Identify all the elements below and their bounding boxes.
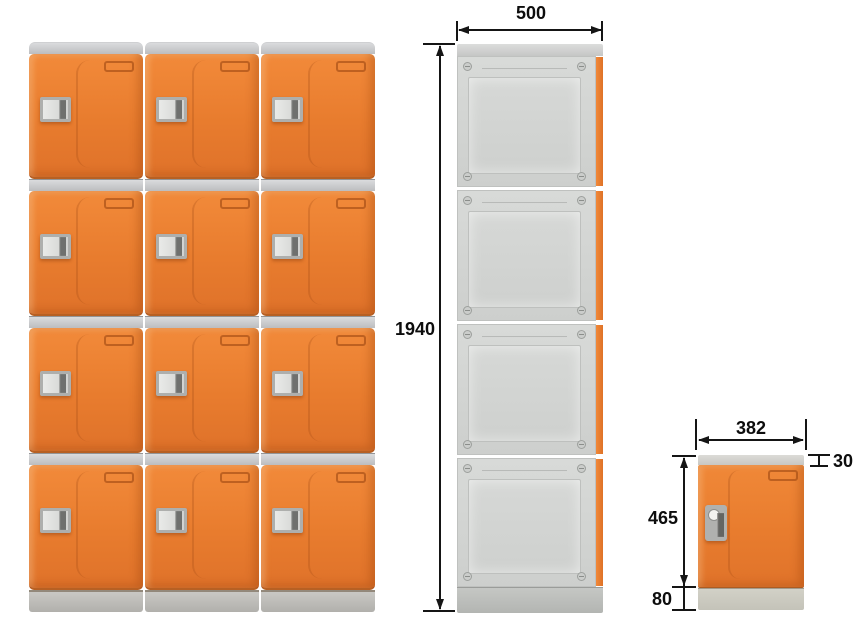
tower-base [29,590,143,612]
locker-top-strip [261,453,375,465]
vent-slot [104,335,134,346]
tower-base [145,590,259,612]
panel-recess [468,211,581,308]
locker-door [261,54,375,179]
vent-slot [768,470,798,481]
vent-slot [220,198,250,209]
door-handle [156,508,187,533]
handle-grip [59,237,66,256]
door-edge-strip [596,325,603,454]
panel-groove [482,68,567,70]
dim-line [683,588,685,609]
screw-icon [463,330,472,339]
front-view [29,42,375,612]
vent-slot [220,61,250,72]
locker-top-strip [145,453,259,465]
handle-grip [59,511,66,530]
door-crease [76,334,100,442]
locker-door [29,54,143,179]
panel-groove [482,470,567,472]
door-handle [40,508,71,533]
locker-door [145,328,259,453]
extension-line [423,610,455,612]
dim-arrow [436,45,444,56]
locker-top-strip [29,453,143,465]
locker-door [261,328,375,453]
dim-line [439,46,441,609]
panel-groove [482,202,567,204]
screw-icon [577,306,586,315]
door-handle [156,234,187,259]
side-panel-section [457,190,596,321]
extension-line [695,419,697,450]
side-panel-section [457,458,596,587]
extension-line [805,419,807,450]
locker-top-strip [145,316,259,328]
screw-icon [577,440,586,449]
locker-top-strip [145,42,259,54]
side-view [457,44,603,612]
handle-grip [291,237,298,256]
locker-tower [29,42,143,612]
handle-grip [175,237,182,256]
single-unit-view [698,455,804,610]
locker-dimension-diagram: 500 1940 382 30 465 80 [0,0,866,625]
panel-groove [482,336,567,338]
locker-top-strip [261,316,375,328]
dim-arrow [458,26,469,34]
screw-icon [463,172,472,181]
dim-label-side-width: 500 [516,3,546,24]
dim-arrow [680,457,688,468]
unit-door [698,465,804,588]
dim-arrow [436,599,444,610]
locker-top-strip [261,42,375,54]
handle-grip [59,374,66,393]
dim-arrow [793,436,804,444]
screw-icon [577,572,586,581]
dim-label-door-height: 465 [640,508,678,529]
unit-handle [705,505,727,541]
door-handle [272,234,303,259]
locker-top-strip [261,179,375,191]
handle-grip [717,513,724,537]
locker-top-strip [29,316,143,328]
vent-slot [104,61,134,72]
tower-base [261,590,375,612]
door-crease [192,197,216,305]
door-crease [728,470,748,579]
locker-door [29,191,143,316]
dim-arrow [591,26,602,34]
door-crease [76,471,100,579]
dim-line [699,439,803,441]
panel-recess [468,479,581,574]
dim-label-top-height: 30 [833,451,853,472]
side-panel-section [457,56,596,187]
handle-grip [175,374,182,393]
panel-recess [468,77,581,174]
panel-recess [468,345,581,442]
door-edge-strip [596,57,603,186]
dim-label-base-height: 80 [640,589,672,610]
dim-line [818,455,820,466]
locker-door [29,328,143,453]
locker-tower [261,42,375,612]
door-handle [272,371,303,396]
screw-icon [463,196,472,205]
handle-grip [59,100,66,119]
door-crease [192,334,216,442]
vent-slot [220,335,250,346]
locker-door [145,465,259,590]
vent-slot [336,61,366,72]
dim-label-total-height: 1940 [385,319,435,340]
door-edge-strip [596,459,603,586]
locker-door [261,465,375,590]
locker-door [29,465,143,590]
screw-icon [577,196,586,205]
locker-top-strip [29,42,143,54]
door-crease [76,60,100,168]
door-handle [40,97,71,122]
dim-line [459,29,601,31]
locker-door [261,191,375,316]
door-handle [156,97,187,122]
locker-door [145,54,259,179]
locker-tower [145,42,259,612]
door-handle [272,508,303,533]
dim-arrow [680,575,688,586]
screw-icon [463,464,472,473]
door-crease [308,471,332,579]
screw-icon [463,440,472,449]
locker-top-strip [145,179,259,191]
vent-slot [104,198,134,209]
unit-top-strip [698,455,804,465]
vent-slot [336,198,366,209]
handle-grip [291,374,298,393]
door-crease [308,334,332,442]
door-crease [308,197,332,305]
screw-icon [577,464,586,473]
handle-grip [175,511,182,530]
door-crease [192,471,216,579]
side-top-strip [457,44,603,56]
handle-grip [175,100,182,119]
door-edge-strip [596,191,603,320]
locker-door [145,191,259,316]
dim-label-unit-width: 382 [736,418,766,439]
dim-line [683,458,685,586]
side-base [457,587,603,613]
screw-icon [463,62,472,71]
door-handle [272,97,303,122]
handle-grip [291,100,298,119]
dim-tick [672,609,696,611]
screw-icon [463,306,472,315]
unit-base [698,588,804,610]
handle-grip [291,511,298,530]
side-panel-section [457,324,596,455]
vent-slot [104,472,134,483]
door-crease [76,197,100,305]
screw-icon [577,172,586,181]
vent-slot [336,472,366,483]
door-handle [40,234,71,259]
vent-slot [220,472,250,483]
screw-icon [577,62,586,71]
dim-arrow [698,436,709,444]
door-crease [308,60,332,168]
vent-slot [336,335,366,346]
screw-icon [463,572,472,581]
locker-top-strip [29,179,143,191]
door-handle [156,371,187,396]
screw-icon [577,330,586,339]
door-handle [40,371,71,396]
door-crease [192,60,216,168]
